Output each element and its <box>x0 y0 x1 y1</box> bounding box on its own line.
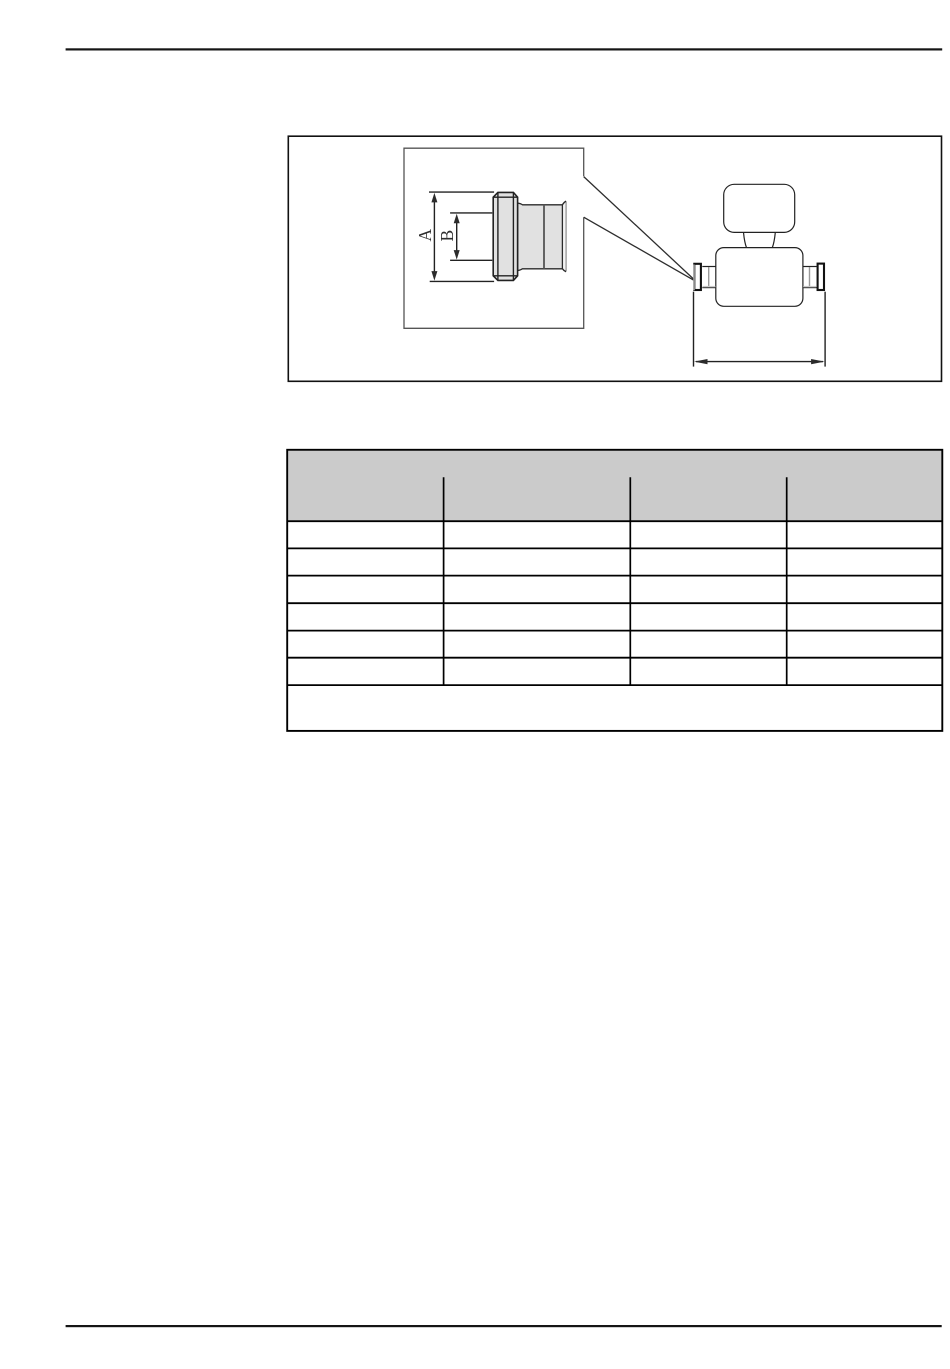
svg-text:B: B <box>437 230 457 242</box>
svg-text:A: A <box>415 229 435 242</box>
